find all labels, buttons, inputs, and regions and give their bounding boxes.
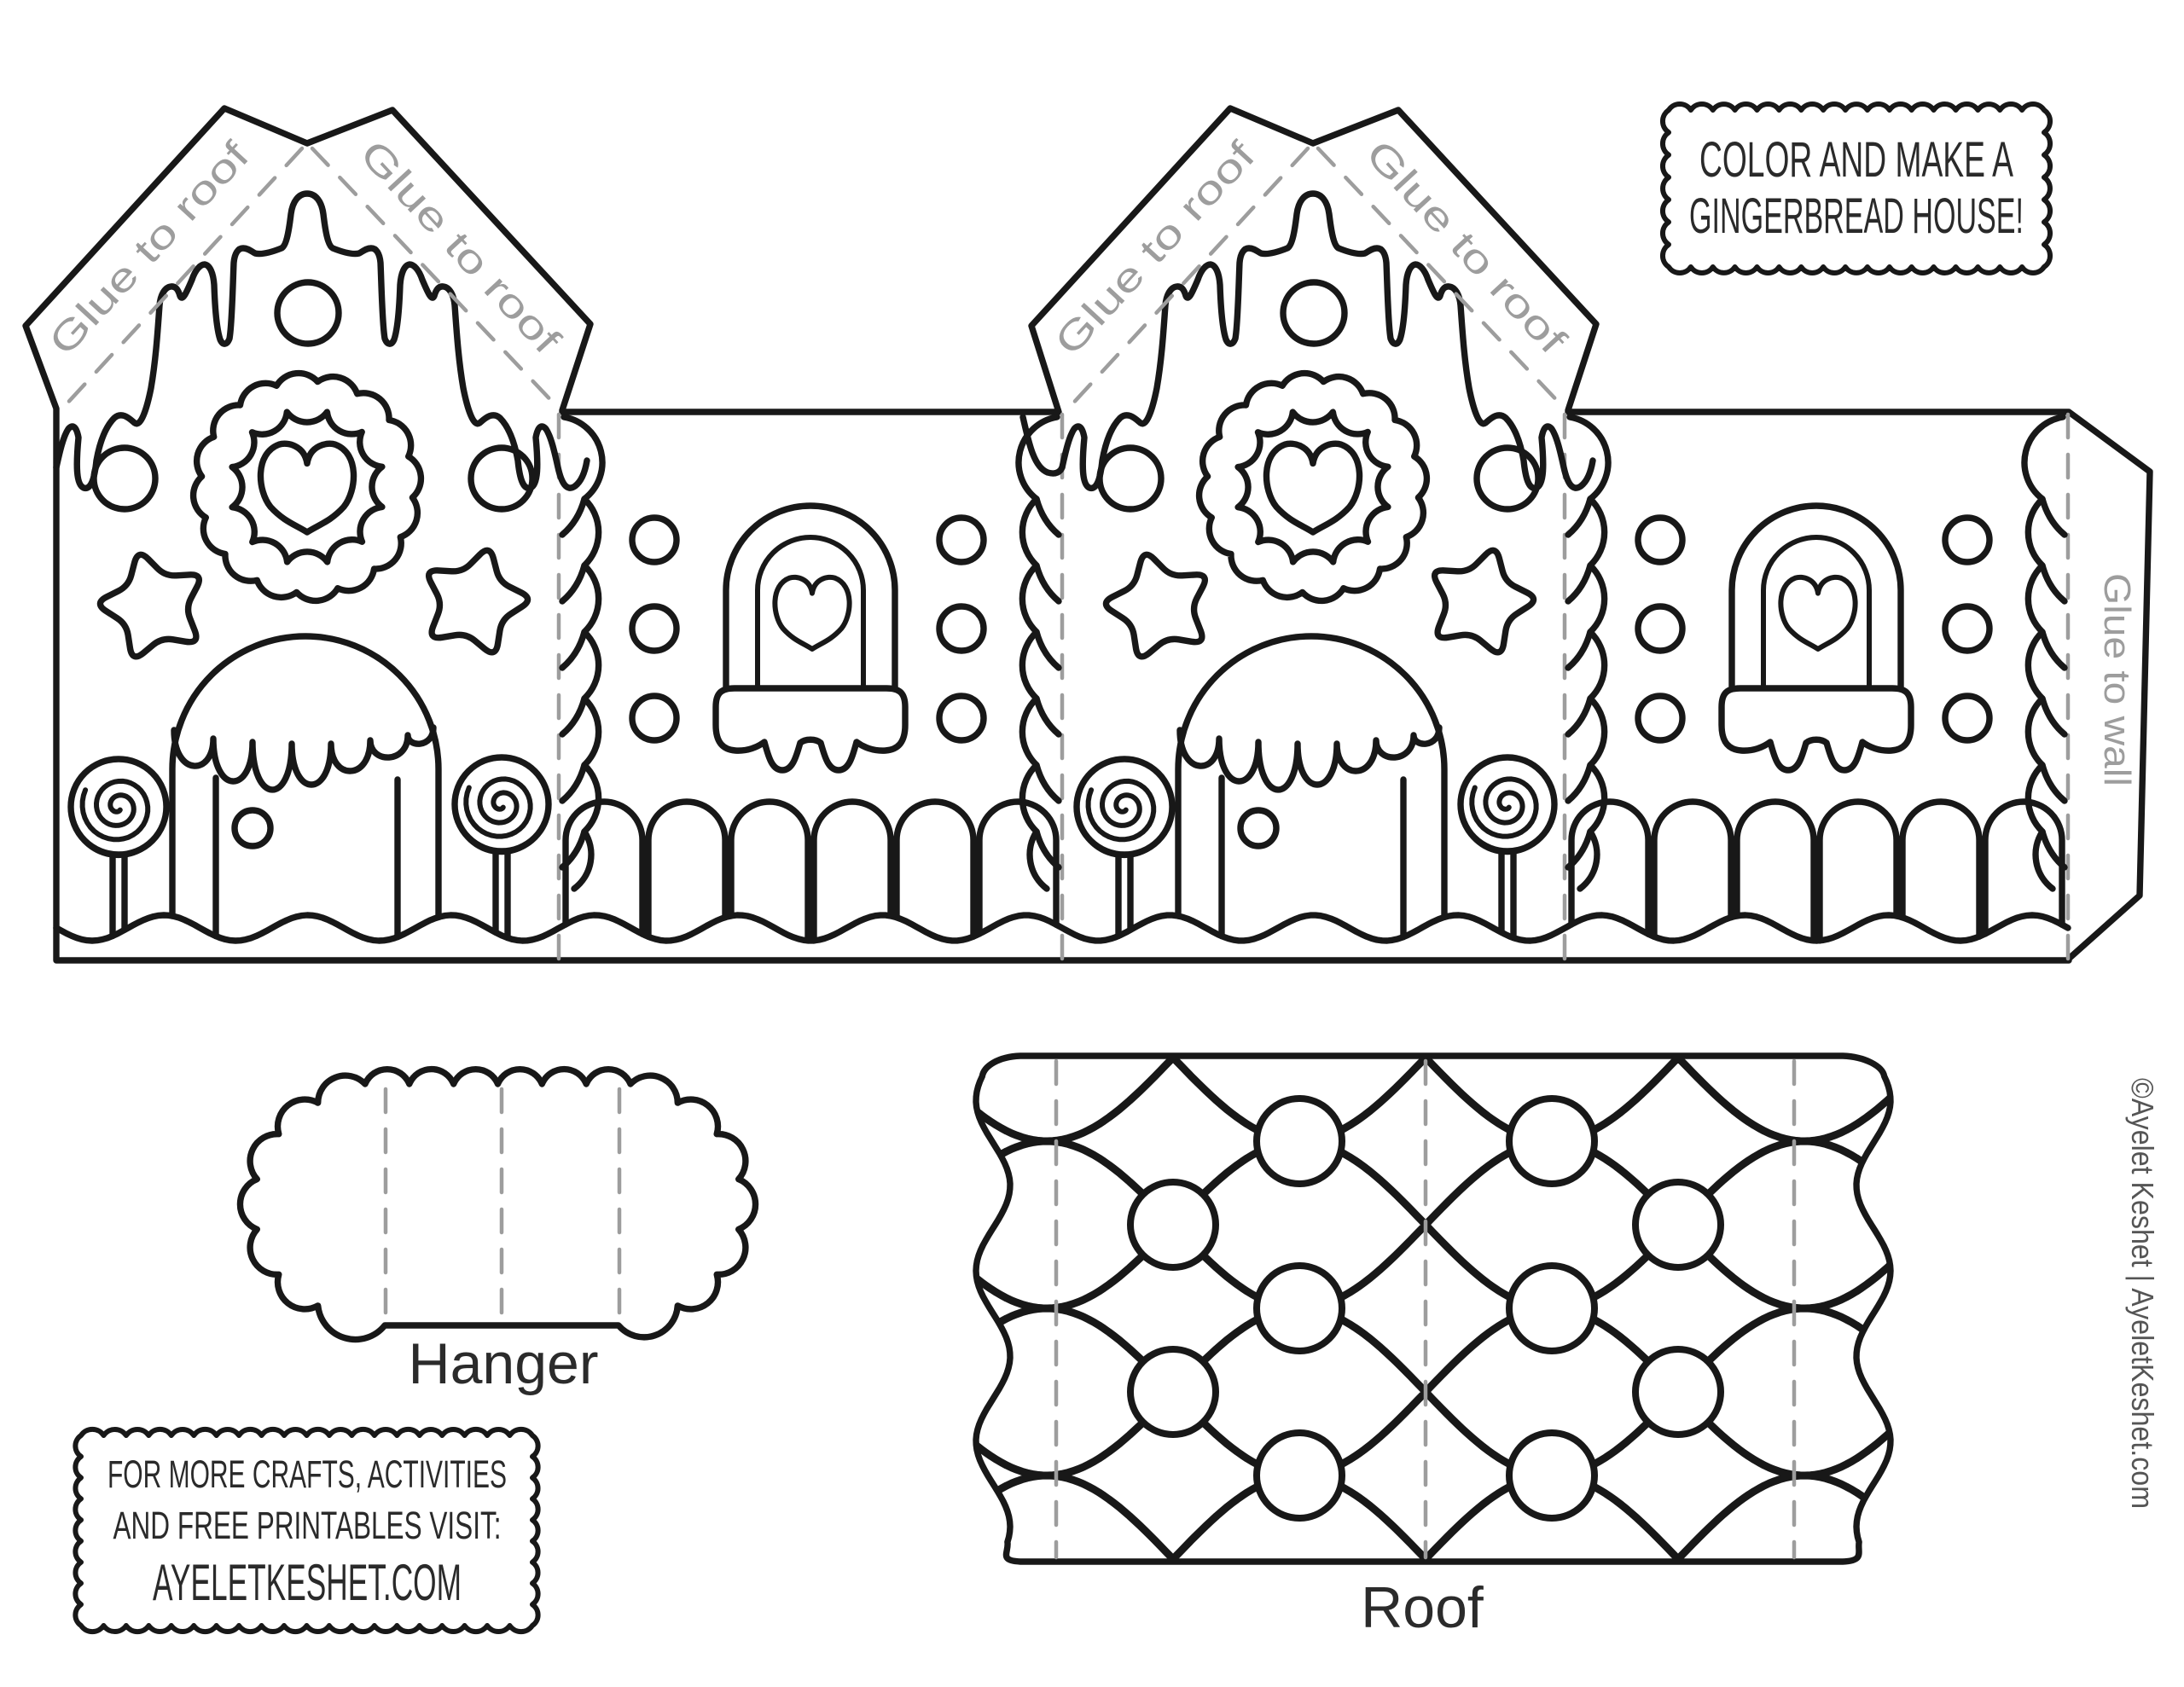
svg-text:AND FREE PRINTABLES VISIT:: AND FREE PRINTABLES VISIT: xyxy=(113,1504,502,1547)
svg-text:©Ayelet Keshet | AyeletKeshet.: ©Ayelet Keshet | AyeletKeshet.com xyxy=(2125,1078,2160,1509)
svg-text:FOR MORE CRAFTS, ACTIVITIES: FOR MORE CRAFTS, ACTIVITIES xyxy=(107,1452,507,1496)
svg-text:Glue to wall: Glue to wall xyxy=(2096,573,2138,786)
svg-text:GINGERBREAD HOUSE!: GINGERBREAD HOUSE! xyxy=(1689,188,2024,244)
svg-text:Hanger: Hanger xyxy=(408,1331,598,1396)
svg-text:AYELETKESHET.COM: AYELETKESHET.COM xyxy=(153,1554,462,1611)
svg-text:COLOR AND MAKE A: COLOR AND MAKE A xyxy=(1699,132,2013,188)
svg-text:Roof: Roof xyxy=(1361,1575,1484,1640)
